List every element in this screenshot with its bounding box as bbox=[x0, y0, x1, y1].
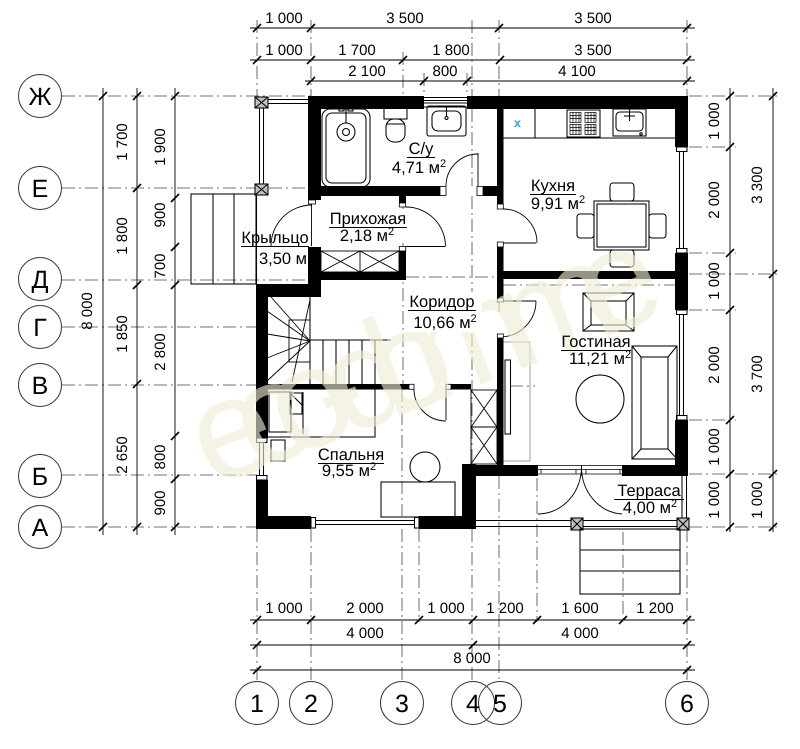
svg-text:4: 4 bbox=[466, 690, 480, 718]
svg-text:x: x bbox=[514, 116, 521, 130]
svg-text:4,00 м2: 4,00 м2 bbox=[623, 498, 677, 517]
svg-text:9,55 м2: 9,55 м2 bbox=[322, 461, 376, 480]
svg-text:2 800: 2 800 bbox=[152, 333, 169, 371]
svg-text:Коридор: Коридор bbox=[409, 293, 474, 311]
svg-text:3 500: 3 500 bbox=[574, 10, 612, 27]
svg-text:3: 3 bbox=[395, 690, 409, 718]
svg-text:1 600: 1 600 bbox=[561, 600, 599, 617]
svg-text:8 000: 8 000 bbox=[79, 292, 96, 330]
svg-text:11,21 м2: 11,21 м2 bbox=[569, 349, 631, 368]
svg-text:Прихожая: Прихожая bbox=[330, 210, 406, 228]
svg-text:900: 900 bbox=[152, 202, 169, 227]
svg-text:С/у: С/у bbox=[409, 140, 435, 158]
svg-text:3 300: 3 300 bbox=[749, 166, 766, 204]
svg-text:1 200: 1 200 bbox=[486, 600, 524, 617]
svg-text:1 200: 1 200 bbox=[636, 600, 674, 617]
svg-text:1 000: 1 000 bbox=[265, 10, 303, 27]
svg-text:1 000: 1 000 bbox=[706, 262, 723, 300]
svg-text:3 500: 3 500 bbox=[386, 10, 424, 27]
svg-text:8 000: 8 000 bbox=[453, 650, 491, 667]
svg-text:4 100: 4 100 bbox=[558, 63, 596, 80]
svg-text:4 000: 4 000 bbox=[561, 625, 599, 642]
svg-text:2 650: 2 650 bbox=[114, 436, 131, 474]
svg-text:Крыльцо: Крыльцо bbox=[241, 229, 308, 247]
svg-text:4,71 м2: 4,71 м2 bbox=[392, 158, 446, 177]
svg-text:2 000: 2 000 bbox=[346, 600, 384, 617]
svg-text:3,50 м: 3,50 м bbox=[259, 250, 307, 268]
svg-text:3 500: 3 500 bbox=[574, 42, 612, 59]
svg-text:1 850: 1 850 bbox=[114, 315, 131, 353]
svg-text:5: 5 bbox=[493, 690, 507, 718]
svg-text:3 700: 3 700 bbox=[749, 355, 766, 393]
svg-text:10,66 м2: 10,66 м2 bbox=[413, 313, 476, 332]
svg-text:2 000: 2 000 bbox=[706, 346, 723, 384]
svg-text:Кухня: Кухня bbox=[531, 177, 575, 195]
svg-text:800: 800 bbox=[432, 63, 457, 80]
svg-text:1 000: 1 000 bbox=[427, 600, 465, 617]
svg-text:1 000: 1 000 bbox=[749, 481, 766, 519]
svg-text:4 000: 4 000 bbox=[346, 625, 384, 642]
svg-text:Б: Б bbox=[32, 463, 48, 491]
svg-text:Е: Е bbox=[32, 175, 49, 203]
svg-text:800: 800 bbox=[152, 444, 169, 469]
svg-text:1 700: 1 700 bbox=[114, 123, 131, 161]
svg-text:900: 900 bbox=[152, 490, 169, 515]
svg-text:1 000: 1 000 bbox=[265, 600, 303, 617]
svg-text:А: А bbox=[32, 514, 49, 542]
svg-text:6: 6 bbox=[680, 690, 694, 718]
svg-text:9,91 м2: 9,91 м2 bbox=[531, 194, 585, 213]
svg-text:1 700: 1 700 bbox=[338, 42, 376, 59]
svg-text:2: 2 bbox=[304, 690, 318, 718]
svg-text:В: В bbox=[32, 372, 49, 400]
svg-text:1 000: 1 000 bbox=[706, 102, 723, 140]
svg-text:1 800: 1 800 bbox=[432, 42, 470, 59]
svg-text:1 900: 1 900 bbox=[152, 128, 169, 166]
svg-text:Г: Г bbox=[33, 314, 47, 342]
svg-text:700: 700 bbox=[152, 253, 169, 278]
svg-text:Ж: Ж bbox=[28, 83, 51, 111]
svg-text:1 000: 1 000 bbox=[265, 42, 303, 59]
svg-text:2 000: 2 000 bbox=[706, 181, 723, 219]
svg-text:1 800: 1 800 bbox=[114, 217, 131, 255]
svg-text:1 000: 1 000 bbox=[706, 428, 723, 466]
svg-text:2,18 м2: 2,18 м2 bbox=[340, 226, 394, 245]
svg-text:2 100: 2 100 bbox=[348, 63, 386, 80]
svg-text:Д: Д bbox=[32, 266, 49, 294]
svg-text:1: 1 bbox=[250, 690, 264, 718]
svg-text:Гостиная: Гостиная bbox=[561, 333, 630, 351]
svg-text:1 000: 1 000 bbox=[706, 481, 723, 519]
